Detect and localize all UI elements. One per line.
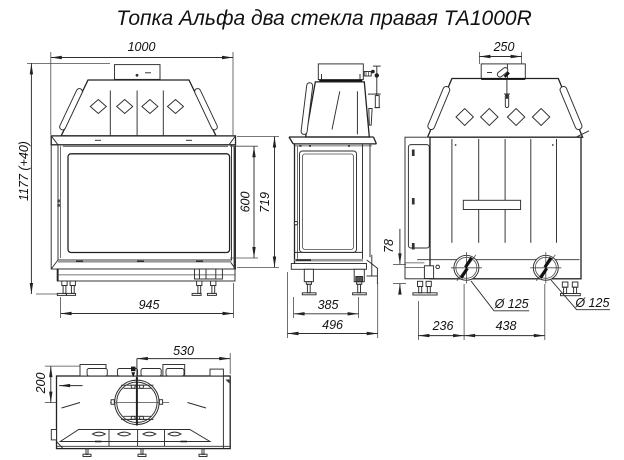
svg-text:78: 78 (382, 239, 396, 253)
svg-text:945: 945 (139, 298, 160, 312)
svg-text:719: 719 (258, 192, 272, 213)
svg-text:438: 438 (496, 319, 517, 333)
svg-text:600: 600 (239, 192, 253, 213)
svg-text:250: 250 (493, 40, 515, 54)
svg-text:Ø 125: Ø 125 (574, 296, 609, 310)
svg-text:385: 385 (318, 298, 339, 312)
svg-text:Топка Альфа два стекла правая: Топка Альфа два стекла правая ТА1000R (116, 7, 531, 30)
svg-text:200: 200 (34, 373, 48, 395)
svg-text:236: 236 (432, 319, 454, 333)
svg-text:1177 (+40): 1177 (+40) (17, 141, 31, 201)
svg-text:1000: 1000 (128, 40, 156, 54)
svg-text:496: 496 (322, 318, 343, 332)
svg-text:530: 530 (173, 344, 194, 358)
svg-text:Ø 125: Ø 125 (494, 297, 529, 311)
